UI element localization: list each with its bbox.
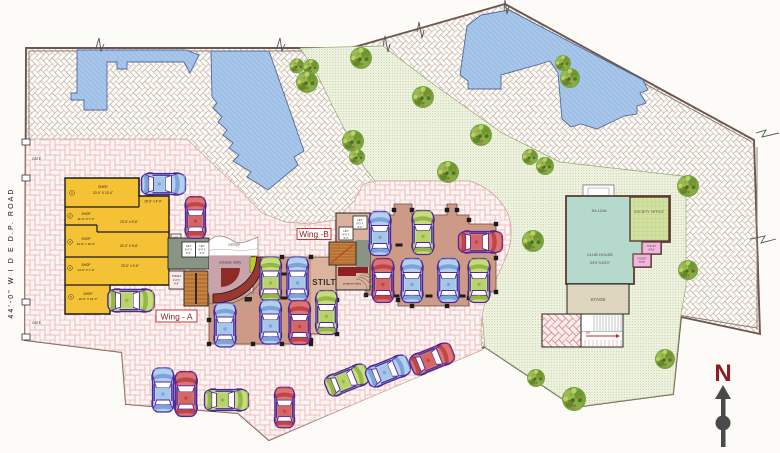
- svg-text:LIFT: LIFT: [186, 244, 192, 248]
- svg-text:GATE: GATE: [32, 321, 42, 325]
- svg-text:GATE: GATE: [32, 157, 42, 161]
- svg-text:8'-0": 8'-0": [186, 252, 191, 255]
- svg-text:11'-6" X 7'-0": 11'-6" X 7'-0": [77, 217, 94, 221]
- svg-text:N: N: [714, 360, 731, 387]
- svg-text:8'-0": 8'-0": [358, 226, 363, 229]
- svg-text:M.E.: M.E.: [173, 236, 179, 240]
- svg-text:SHOP: SHOP: [81, 263, 90, 267]
- svg-text:SA 1246: SA 1246: [591, 208, 607, 213]
- svg-text:12'-6" x 10'-0": 12'-6" x 10'-0": [77, 242, 95, 246]
- svg-text:LIFT: LIFT: [357, 218, 363, 222]
- svg-text:SHOP: SHOP: [98, 185, 108, 189]
- svg-text:SHOP: SHOP: [81, 212, 90, 216]
- svg-text:23'-0" x 9'-6": 23'-0" x 9'-6": [121, 264, 139, 268]
- svg-text:15'-0" x 4'-0": 15'-0" x 4'-0": [144, 200, 162, 204]
- svg-text:8'X6': 8'X6': [648, 248, 655, 252]
- svg-text:Wing - A: Wing - A: [160, 312, 192, 322]
- svg-text:CLUB HOUSE: CLUB HOUSE: [587, 252, 613, 257]
- svg-text:canopy: canopy: [228, 243, 240, 247]
- svg-text:8'X6': 8'X6': [639, 260, 646, 264]
- svg-text:8'-0": 8'-0": [344, 237, 349, 240]
- svg-text:STILT: STILT: [312, 278, 336, 287]
- svg-text:20'-0" X 10'-0": 20'-0" X 10'-0": [93, 191, 113, 195]
- svg-text:8'-0": 8'-0": [200, 252, 205, 255]
- svg-text:UP: UP: [586, 331, 590, 335]
- svg-text:entrance lobby: entrance lobby: [343, 282, 362, 286]
- svg-text:8'-0": 8'-0": [174, 283, 179, 286]
- svg-text:SHOP: SHOP: [81, 237, 90, 241]
- svg-text:SHOP: SHOP: [83, 292, 92, 296]
- svg-text:entrance lobby: entrance lobby: [219, 261, 242, 265]
- svg-text:33'0"X43'0": 33'0"X43'0": [590, 260, 611, 265]
- svg-text:TOILET: TOILET: [172, 274, 181, 278]
- svg-text:16'-0" X 10'-0": 16'-0" X 10'-0": [79, 297, 98, 301]
- svg-text:23'-0" X 9'-6": 23'-0" X 9'-6": [120, 244, 138, 248]
- svg-text:23'-0" x 9'-6": 23'-0" x 9'-6": [120, 220, 138, 224]
- svg-text:44'-0" W I D E D.P. ROAD: 44'-0" W I D E D.P. ROAD: [8, 187, 15, 318]
- svg-text:14'-0" X 7'-0": 14'-0" X 7'-0": [77, 268, 94, 272]
- svg-text:LIFT: LIFT: [343, 229, 349, 233]
- svg-text:Wing -B: Wing -B: [299, 229, 329, 239]
- svg-text:STAGE: STAGE: [591, 297, 606, 302]
- svg-text:SOCIETY OFFICE: SOCIETY OFFICE: [634, 210, 664, 214]
- svg-text:LIFT: LIFT: [199, 244, 205, 248]
